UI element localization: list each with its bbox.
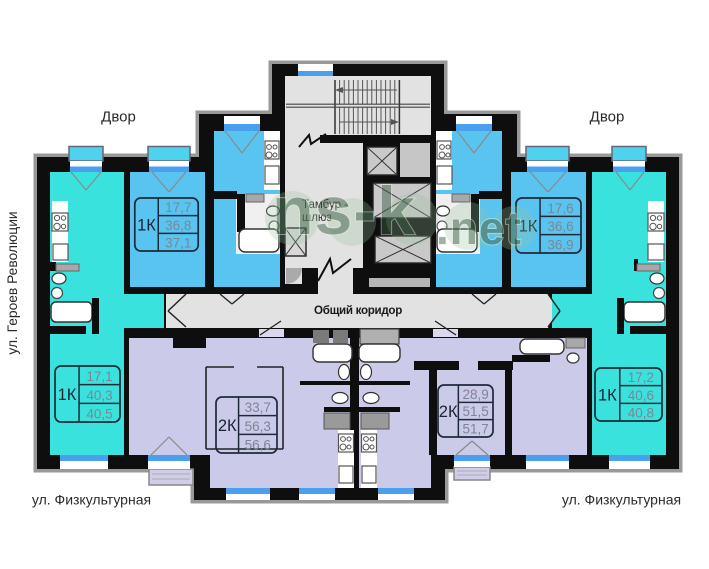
svg-text:2К: 2К	[439, 403, 458, 421]
svg-text:36,8: 36,8	[165, 218, 191, 233]
svg-text:17,2: 17,2	[628, 370, 654, 385]
svg-text:ул. Физкультурная: ул. Физкультурная	[562, 492, 681, 508]
svg-text:17,7: 17,7	[165, 200, 191, 215]
svg-text:1К: 1К	[598, 387, 617, 405]
svg-text:ул. Героев Революции: ул. Героев Революции	[5, 211, 20, 354]
svg-text:17,1: 17,1	[86, 369, 112, 384]
svg-text:40,3: 40,3	[86, 388, 112, 403]
svg-text:.net: .net	[436, 202, 522, 254]
svg-text:Двор: Двор	[590, 109, 625, 126]
svg-text:17,6: 17,6	[547, 201, 573, 216]
svg-text:ns-k: ns-k	[272, 173, 416, 249]
svg-text:Общий коридор: Общий коридор	[314, 304, 402, 317]
svg-text:40,5: 40,5	[86, 407, 112, 422]
svg-text:33,7: 33,7	[245, 400, 271, 415]
svg-text:56,6: 56,6	[245, 438, 271, 453]
svg-text:36,6: 36,6	[547, 219, 573, 234]
svg-text:37,1: 37,1	[165, 236, 191, 251]
svg-text:2К: 2К	[218, 417, 237, 435]
svg-text:40,8: 40,8	[628, 406, 654, 421]
svg-text:36,9: 36,9	[547, 238, 573, 253]
svg-text:51,7: 51,7	[463, 422, 489, 437]
svg-text:1К: 1К	[137, 217, 156, 235]
svg-text:51,5: 51,5	[463, 404, 489, 419]
svg-text:Двор: Двор	[101, 109, 136, 126]
svg-text:40,6: 40,6	[628, 388, 654, 403]
svg-text:28,9: 28,9	[463, 387, 489, 402]
svg-text:56,3: 56,3	[245, 419, 271, 434]
svg-text:ул. Физкультурная: ул. Физкультурная	[32, 492, 151, 508]
svg-text:1К: 1К	[58, 386, 77, 404]
